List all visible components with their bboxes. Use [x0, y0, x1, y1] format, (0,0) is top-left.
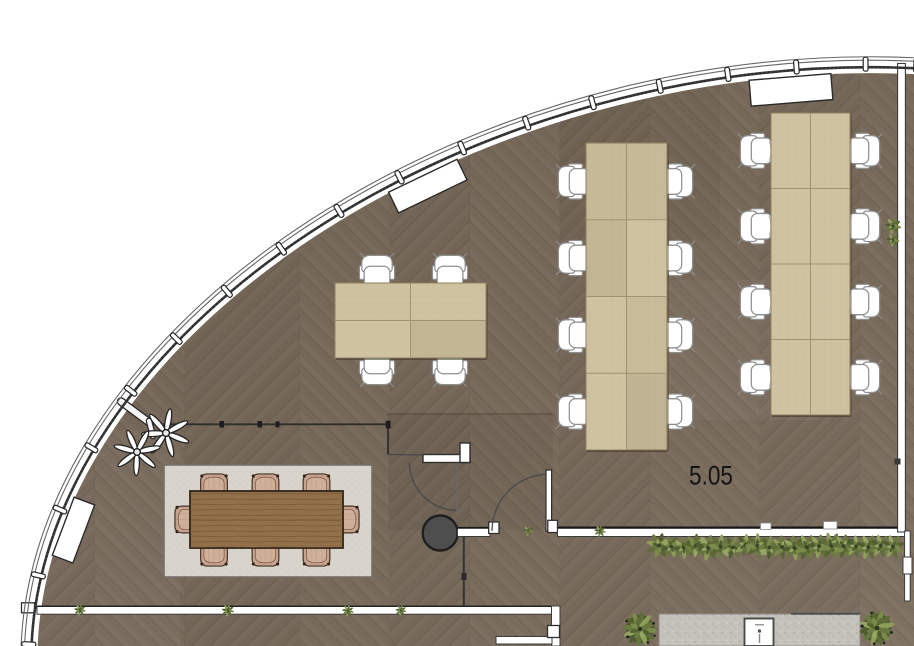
svg-text:5.05: 5.05	[689, 461, 733, 491]
